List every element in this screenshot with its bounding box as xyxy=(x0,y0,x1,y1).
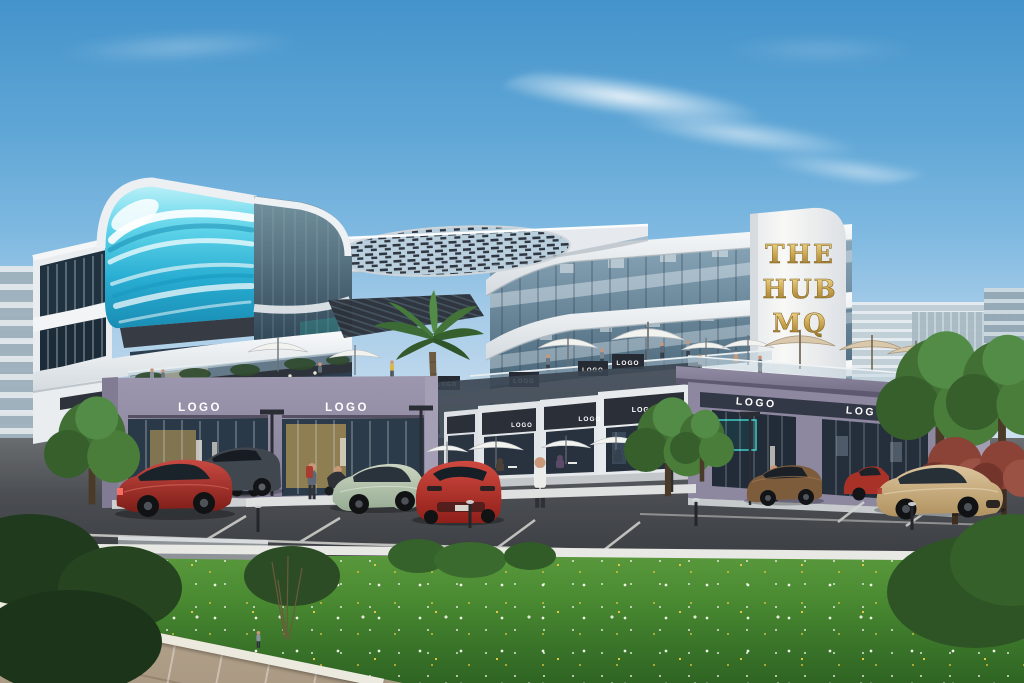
logo-sign-kiosk-1: LOGO xyxy=(511,423,533,429)
logo-sign-shop-2: LOGO xyxy=(325,402,369,414)
tower-sign-line2: HUB xyxy=(762,275,837,305)
backpack xyxy=(306,466,313,478)
mannequin xyxy=(340,438,346,466)
rendering-canvas: THE HUB MQ xyxy=(0,0,1024,683)
tower-sign-line1: THE xyxy=(765,240,835,270)
logo-sign-mid-4: LOGO xyxy=(616,360,639,367)
logo-sign-kiosk-2: LOGO xyxy=(578,416,601,423)
scene-artwork: THE HUB MQ xyxy=(0,0,1024,683)
logo-sign-shop-1: LOGO xyxy=(178,402,222,414)
